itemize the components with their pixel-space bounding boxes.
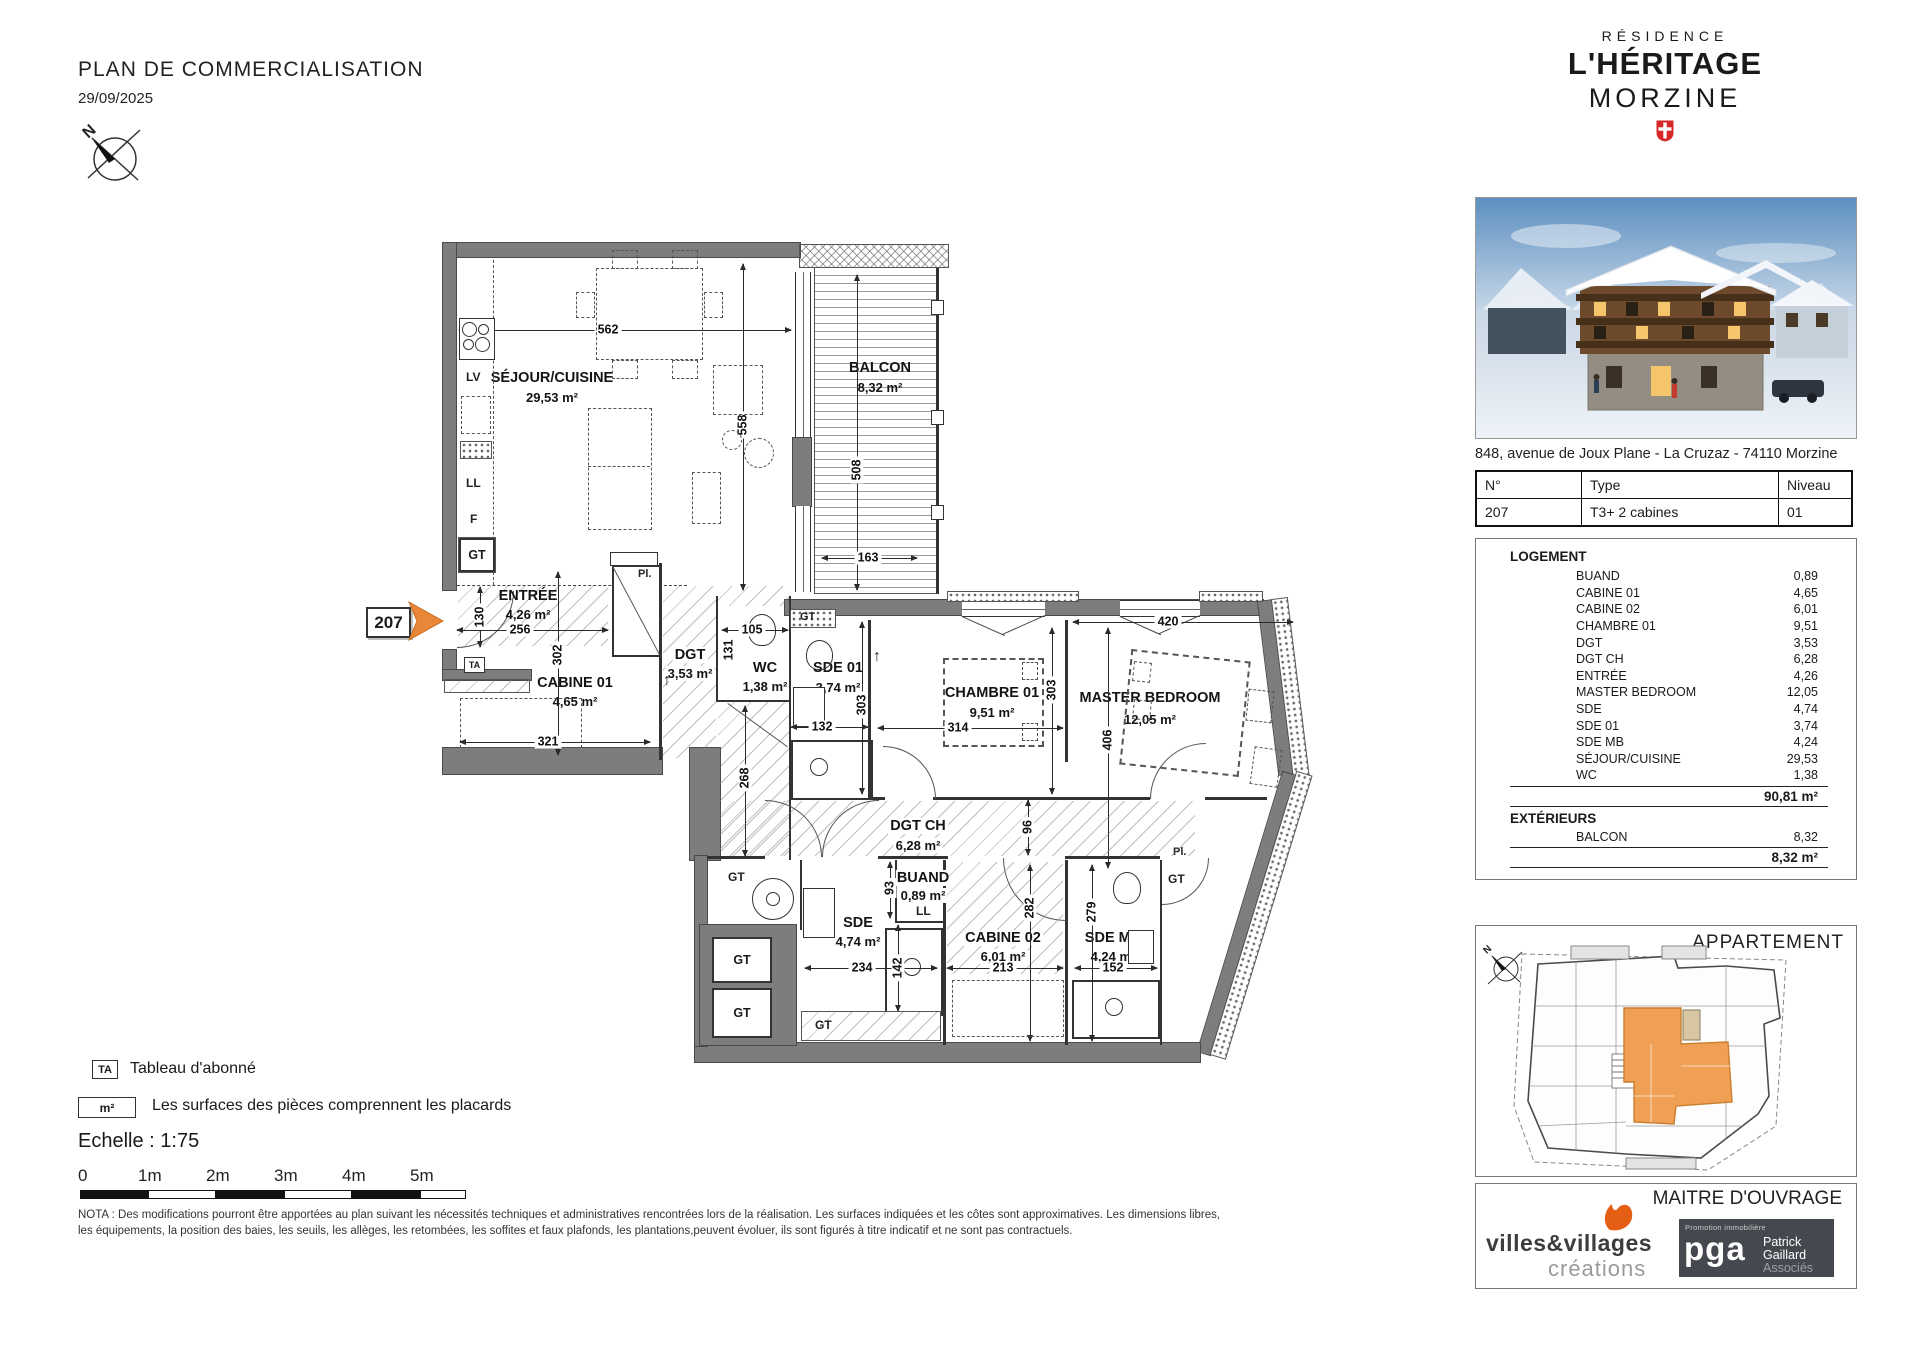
cooktop-burner	[475, 337, 490, 352]
gt-duct-kitchen: GT	[459, 538, 495, 572]
gt-label: GT	[1168, 872, 1185, 886]
room-area-sejour: 29,53 m²	[526, 390, 578, 405]
surface-value: 3,74	[1794, 719, 1828, 733]
entrance-arrow-icon	[407, 600, 445, 642]
tag-dishwasher: LV	[466, 370, 480, 384]
side-table	[722, 430, 742, 450]
cooktop-burner	[462, 322, 477, 337]
room-area-buand: 0,89 m²	[900, 888, 947, 903]
surface-row: BALCON8,32	[1476, 829, 1828, 846]
wall-sde-right	[800, 860, 802, 930]
room-name-dgtch: DGT CH	[888, 818, 948, 834]
dim-line	[857, 275, 858, 590]
surface-value: 9,51	[1794, 619, 1828, 633]
dining-chair	[612, 360, 638, 379]
surface-row: SDE MB4,24	[1476, 734, 1828, 751]
wall-buand-bottom	[895, 921, 945, 923]
wall-master-bottom-b	[1205, 797, 1267, 800]
balcony-rail-post	[931, 300, 944, 315]
unit-table: N° Type Niveau 207 T3+ 2 cabines 01	[1475, 470, 1853, 527]
dining-chair	[576, 292, 595, 318]
surface-label: DGT	[1476, 636, 1602, 650]
villes-villages-logo: villes&villages créations	[1486, 1198, 1658, 1282]
dim-line	[1092, 865, 1093, 1041]
unit-niveau-value: 01	[1779, 499, 1853, 527]
wall-wc-bottom	[716, 700, 790, 702]
scale-segment	[352, 1190, 420, 1199]
wall-top-balcony	[800, 245, 948, 267]
svg-text:N: N	[1481, 943, 1494, 956]
surface-label: SDE	[1476, 702, 1602, 716]
surface-value: 3,53	[1794, 636, 1828, 650]
exterieurs-title: EXTÉRIEURS	[1510, 811, 1856, 826]
unit-type-value: T3+ 2 cabines	[1582, 499, 1779, 527]
surface-label: BUAND	[1476, 569, 1620, 583]
entry-arrow: ↑	[663, 672, 671, 690]
surface-row: BUAND0,89	[1476, 568, 1828, 585]
scale-label-5m: 5m	[410, 1166, 434, 1186]
window-chambre01	[962, 600, 1045, 617]
surface-value: 4,26	[1794, 669, 1828, 683]
kitchen-counter-line	[493, 260, 494, 585]
dgt-floor-hatch2	[716, 586, 790, 606]
surface-label: CABINE 01	[1476, 586, 1640, 600]
dim-chambre01-h: 303	[1046, 677, 1059, 704]
unit-no-value: 207	[1476, 499, 1582, 527]
tag-washing-machine: LL	[466, 476, 481, 490]
balcony-rail	[936, 268, 939, 594]
wall-block-top-c	[1065, 856, 1160, 859]
wall-step-hatch	[445, 680, 529, 692]
wall-bottom-west	[443, 748, 662, 774]
plan-de-commercialisation-page: { "header": { "title": "PLAN DE COMMERCI…	[0, 0, 1920, 1357]
sdemb-sink	[1128, 930, 1154, 964]
kitchen-island	[588, 408, 652, 530]
sde-sink	[803, 888, 835, 938]
master-pillow	[1132, 699, 1152, 721]
ta-box: TA	[464, 657, 485, 673]
tag-placard: Pl.	[638, 568, 651, 580]
master-pillow	[1132, 661, 1152, 683]
room-area-dgtch: 6,28 m²	[894, 838, 943, 853]
scale-segment	[80, 1190, 148, 1199]
scale-label-4m: 4m	[342, 1166, 366, 1186]
surface-label: DGT CH	[1476, 652, 1624, 666]
unit-table-header-type: Type	[1582, 471, 1779, 499]
surface-row: SÉJOUR/CUISINE29,53	[1476, 751, 1828, 768]
chambre01-pillow	[1022, 662, 1038, 680]
surface-row: DGT CH6,28	[1476, 651, 1828, 668]
pga-associes: Associés	[1763, 1261, 1813, 1275]
divider	[1510, 847, 1828, 848]
unit-number: 207	[374, 613, 402, 633]
insulation-right-lower	[1211, 772, 1312, 1058]
surface-label: SDE 01	[1476, 719, 1619, 733]
surface-label: WC	[1476, 768, 1597, 782]
dim-sdemb-w: 152	[1100, 962, 1127, 975]
floor-plan: BALCON 8,32 m² 508 163 SÉJOUR/CUISINE 29…	[0, 0, 1350, 1100]
window-swing-line	[962, 616, 1005, 636]
dim-cabine01-w: 321	[535, 736, 562, 749]
room-name-balcon: BALCON	[849, 360, 911, 376]
gt-label: GT	[728, 870, 745, 884]
gt-duct-box: GT	[712, 988, 772, 1038]
m2-text: Les surfaces des pièces comprennent les …	[152, 1097, 511, 1115]
scale-label-0: 0	[78, 1166, 87, 1186]
surface-row: MASTER BEDROOM12,05	[1476, 684, 1828, 701]
kitchen-island-split	[588, 466, 650, 467]
tv-stand	[610, 552, 658, 566]
cabine01-bed	[460, 698, 582, 748]
balcony-rail-post	[931, 410, 944, 425]
divider	[1510, 806, 1828, 807]
surface-label: CABINE 02	[1476, 602, 1640, 616]
logo-line-morzine: MORZINE	[1475, 83, 1855, 114]
dim-master-w: 420	[1155, 616, 1182, 629]
dim-balcon-h: 508	[851, 457, 864, 484]
pga-gaillard: Gaillard	[1763, 1248, 1806, 1262]
building-key-plan: N	[1476, 926, 1856, 1176]
gt-label: GT	[733, 953, 750, 967]
room-area-sde: 4,74 m²	[836, 934, 881, 949]
surface-value: 1,38	[1794, 768, 1828, 782]
dim-dgt-h: 268	[739, 765, 752, 792]
balcony-deck	[815, 268, 937, 593]
scale-segment	[148, 1190, 216, 1199]
wall-right-slant-lower	[1198, 772, 1296, 1055]
moa-title: MAITRE D'OUVRAGE	[1653, 1188, 1842, 1210]
surface-row: ENTRÉE4,26	[1476, 668, 1828, 685]
room-area-wc: 1,38 m²	[743, 679, 788, 694]
gt-label: GT	[800, 611, 815, 623]
surface-value: 4,65	[1794, 586, 1828, 600]
surface-value: 4,74	[1794, 702, 1828, 716]
wall-pier	[793, 438, 811, 506]
wall-block-top-a	[707, 856, 765, 859]
dining-chair	[672, 250, 698, 269]
vv-flame-icon	[1598, 1198, 1638, 1232]
pga-logo: Promotion immobilière pga Patrick Gailla…	[1679, 1219, 1834, 1277]
surface-value: 6,01	[1794, 602, 1828, 616]
building-photo-illustration	[1476, 198, 1856, 438]
dim-sde-w: 234	[849, 962, 876, 975]
kitchen-sink	[461, 396, 491, 434]
scale-label-3m: 3m	[274, 1166, 298, 1186]
address: 848, avenue de Joux Plane - La Cruzaz - …	[1475, 446, 1855, 462]
scale-title: Echelle : 1:75	[78, 1130, 199, 1153]
dining-chair	[612, 250, 638, 269]
room-name-sde: SDE	[843, 915, 873, 931]
residence-logo: RÉSIDENCE L'HÉRITAGE MORZINE	[1475, 28, 1855, 148]
unit-table-data-row: 207 T3+ 2 cabines 01	[1476, 499, 1852, 527]
surface-value: 6,28	[1794, 652, 1828, 666]
dim-entree-w: 256	[507, 624, 534, 637]
logo-line-heritage: L'HÉRITAGE	[1475, 46, 1855, 82]
dim-balcon-w: 163	[855, 552, 882, 565]
dim-sdemb-h: 279	[1086, 899, 1099, 926]
surface-row: DGT3,53	[1476, 634, 1828, 651]
surface-label: ENTRÉE	[1476, 669, 1627, 683]
gt-label: GT	[468, 548, 485, 562]
dim-buand-h: 93	[884, 878, 897, 898]
unit-number-box: 207	[366, 607, 411, 638]
dim-sde-h: 142	[892, 955, 905, 982]
wall-chambre01-left	[868, 620, 871, 798]
dim-cabine02-h: 282	[1024, 895, 1037, 922]
sde-shower-drain	[903, 958, 921, 976]
tag-washing-machine-buand: LL	[916, 904, 931, 918]
tag-fridge: F	[470, 512, 477, 526]
surface-label: SDE MB	[1476, 735, 1624, 749]
m2-symbol-box: m²	[78, 1097, 136, 1118]
armchair	[713, 365, 763, 415]
dim-master-h: 406	[1102, 727, 1115, 754]
insulation-top-2	[1200, 592, 1262, 601]
sde01-toilet	[806, 640, 833, 670]
building-photo	[1475, 197, 1857, 439]
wall-corridor-left	[690, 748, 720, 860]
sofa	[692, 472, 721, 524]
surface-label: CHAMBRE 01	[1476, 619, 1656, 633]
pga-big-text: pga	[1684, 1231, 1746, 1267]
pga-patrick: Patrick	[1763, 1235, 1801, 1249]
savoie-cross-icon	[1655, 119, 1675, 143]
dim-chambre01-w: 314	[945, 722, 972, 735]
wall-left-upper	[443, 243, 456, 590]
gt-label: GT	[733, 1006, 750, 1020]
room-name-cabine01: CABINE 01	[537, 675, 613, 691]
logement-total: 90,81 m²	[1476, 789, 1828, 804]
dining-chair	[704, 292, 723, 318]
room-name-sejour: SÉJOUR/CUISINE	[491, 370, 613, 386]
nota-text: NOTA : Des modifications pourront être a…	[78, 1207, 1233, 1239]
room-area-dgt: 3,53 m²	[666, 666, 715, 681]
surface-value: 8,32	[1794, 830, 1828, 844]
apartment-locator-box: APPARTEMENT N	[1475, 925, 1857, 1177]
ta-symbol-box: TA	[92, 1060, 118, 1079]
sdemb-shower-drain	[1105, 998, 1123, 1016]
insulation-top-1	[948, 592, 1078, 601]
surface-value: 12,05	[1787, 685, 1828, 699]
surface-row: SDE 013,74	[1476, 717, 1828, 734]
surface-value: 0,89	[1794, 569, 1828, 583]
scale-segment	[284, 1190, 352, 1199]
room-area-entree: 4,26 m²	[506, 607, 551, 622]
dim-line	[1052, 628, 1053, 794]
dim-cabine02-w: 213	[990, 962, 1017, 975]
divider	[1510, 786, 1828, 787]
window-sejour	[795, 506, 811, 592]
surface-value: 29,53	[1787, 752, 1828, 766]
dim-wc-w: 105	[739, 624, 766, 637]
dining-table	[596, 268, 703, 360]
surface-row: WC1,38	[1476, 767, 1828, 784]
cabine02-bed	[952, 980, 1064, 1037]
surface-row: SDE4,74	[1476, 701, 1828, 718]
dim-entree-h: 130	[474, 604, 487, 631]
scale-label-1m: 1m	[138, 1166, 162, 1186]
wall-wc-left	[716, 596, 718, 702]
ta-text: Tableau d'abonné	[130, 1060, 256, 1078]
room-name-buand: BUAND	[896, 870, 950, 886]
surface-value: 4,24	[1794, 735, 1828, 749]
room-name-wc: WC	[753, 660, 777, 676]
gt-duct-box: GT	[712, 937, 772, 983]
sde01-shower-drain	[810, 758, 828, 776]
wall-placard-right	[659, 563, 662, 760]
window-swing-line	[1002, 615, 1045, 635]
chambre01-pillow	[1022, 723, 1038, 741]
surface-label: MASTER BEDROOM	[1476, 685, 1696, 699]
scale-label-2m: 2m	[206, 1166, 230, 1186]
surface-row: CABINE 014,65	[1476, 585, 1828, 602]
surface-label: BALCON	[1476, 830, 1627, 844]
wall-master-left	[1065, 620, 1068, 762]
dim-sde01-w: 132	[809, 721, 836, 734]
dim-cabine01-h: 302	[552, 642, 565, 669]
unit-table-header-no: N°	[1476, 471, 1582, 499]
wall-bottom	[695, 1043, 1200, 1062]
dim-line	[1073, 622, 1293, 623]
unit-table-header-niveau: Niveau	[1779, 471, 1853, 499]
master-side-table	[1245, 689, 1274, 724]
window-sejour	[795, 272, 811, 438]
dining-chair	[672, 360, 698, 379]
dim-sde01-h: 303	[856, 692, 869, 719]
dim-wc-h: 131	[723, 637, 736, 664]
vv-name: villes&villages	[1486, 1230, 1652, 1257]
cooktop-burner	[463, 339, 474, 350]
chambre01-door-arc	[883, 746, 936, 799]
moa-box: MAITRE D'OUVRAGE villes&villages créatio…	[1475, 1183, 1857, 1289]
surfaces-box: LOGEMENT BUAND0,89 CABINE 014,65 CABINE …	[1475, 538, 1857, 880]
entry-arrow: ↑	[873, 648, 881, 666]
kitchen-drainer	[461, 442, 491, 458]
logement-title: LOGEMENT	[1510, 549, 1856, 564]
balcony-rail-post	[931, 505, 944, 520]
logo-line-residence: RÉSIDENCE	[1475, 28, 1855, 44]
room-name-entree: ENTRÉE	[499, 588, 558, 604]
surface-label: SÉJOUR/CUISINE	[1476, 752, 1681, 766]
sdemb-toilet	[1113, 872, 1141, 904]
surface-row: CABINE 026,01	[1476, 601, 1828, 618]
wall-chambre01-bottom-b	[933, 797, 1068, 800]
room-area-balcon: 8,32 m²	[858, 380, 903, 395]
wall-left-step	[443, 670, 531, 680]
ta-symbol: TA	[98, 1064, 112, 1076]
scale-segment	[216, 1190, 284, 1199]
master-side-table	[1249, 746, 1282, 788]
washing-machine-door	[766, 892, 780, 906]
divider	[1510, 867, 1828, 868]
vv-creations: créations	[1548, 1256, 1646, 1282]
dim-dgtch-h: 96	[1022, 817, 1035, 837]
unit-table-header-row: N° Type Niveau	[1476, 471, 1852, 499]
scale-segment	[420, 1190, 466, 1199]
surface-row: CHAMBRE 019,51	[1476, 618, 1828, 635]
side-table	[744, 438, 774, 468]
room-name-dgt: DGT	[673, 647, 708, 663]
wall-block-top-b	[878, 856, 948, 859]
m2-symbol: m²	[100, 1101, 115, 1115]
exterieurs-total: 8,32 m²	[1476, 850, 1828, 865]
gt-label: GT	[815, 1018, 832, 1032]
ta-label: TA	[469, 660, 480, 670]
scale-bar: 0 1m 2m 3m 4m 5m	[80, 1160, 540, 1205]
cooktop-burner	[478, 324, 489, 335]
